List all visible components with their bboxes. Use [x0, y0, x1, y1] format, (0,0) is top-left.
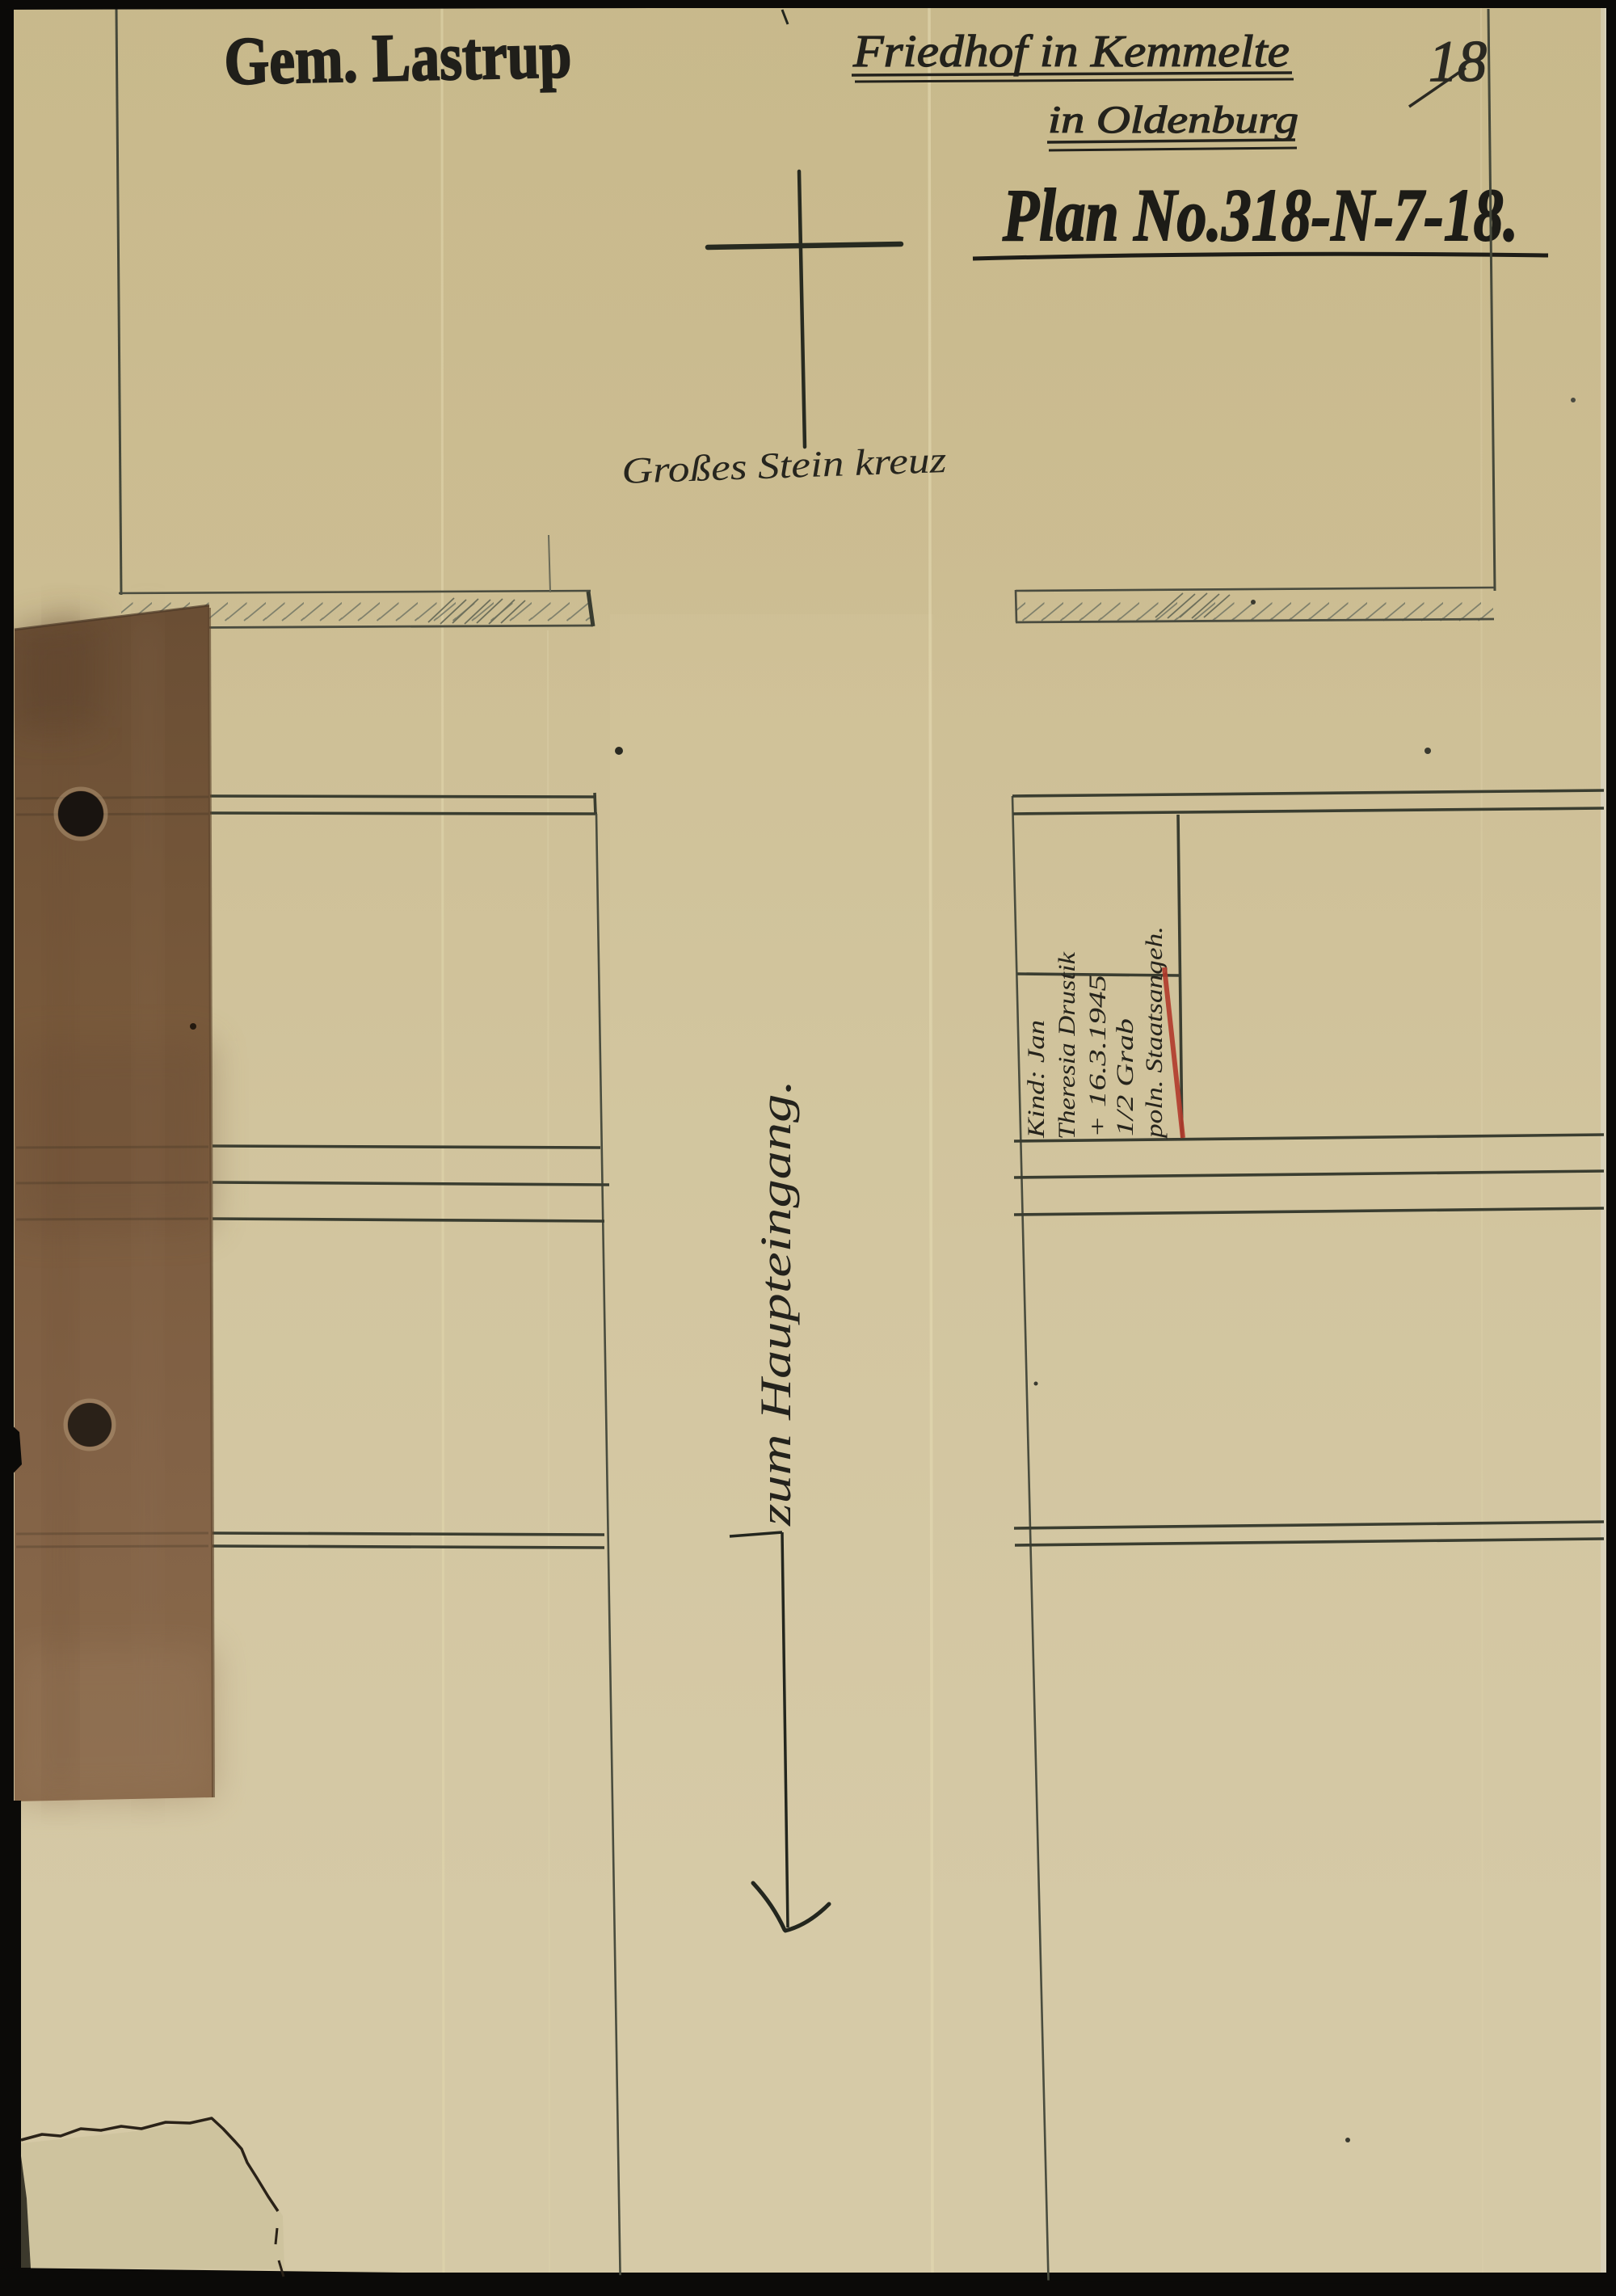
svg-text:Theresia Drustik: Theresia Drustik	[1054, 951, 1080, 1140]
svg-text:Gem. Lastrup: Gem. Lastrup	[223, 17, 572, 99]
svg-text:18: 18	[1429, 29, 1487, 94]
svg-text:1/2 Grab: 1/2 Grab	[1112, 1018, 1138, 1136]
svg-text:poln. Staatsangeh.: poln. Staatsangeh.	[1141, 926, 1168, 1140]
svg-text:Kind: Jan: Kind: Jan	[1023, 1020, 1050, 1139]
svg-text:Plan No.318-N-7-18.: Plan No.318-N-7-18.	[1002, 174, 1518, 256]
svg-text:Friedhof in Kemmelte: Friedhof in Kemmelte	[852, 27, 1290, 77]
svg-text:zum Haupteingang.: zum Haupteingang.	[751, 1080, 800, 1527]
svg-text:in Oldenburg: in Oldenburg	[1048, 99, 1298, 141]
svg-text:+ 16.3.1945: + 16.3.1945	[1084, 975, 1111, 1138]
